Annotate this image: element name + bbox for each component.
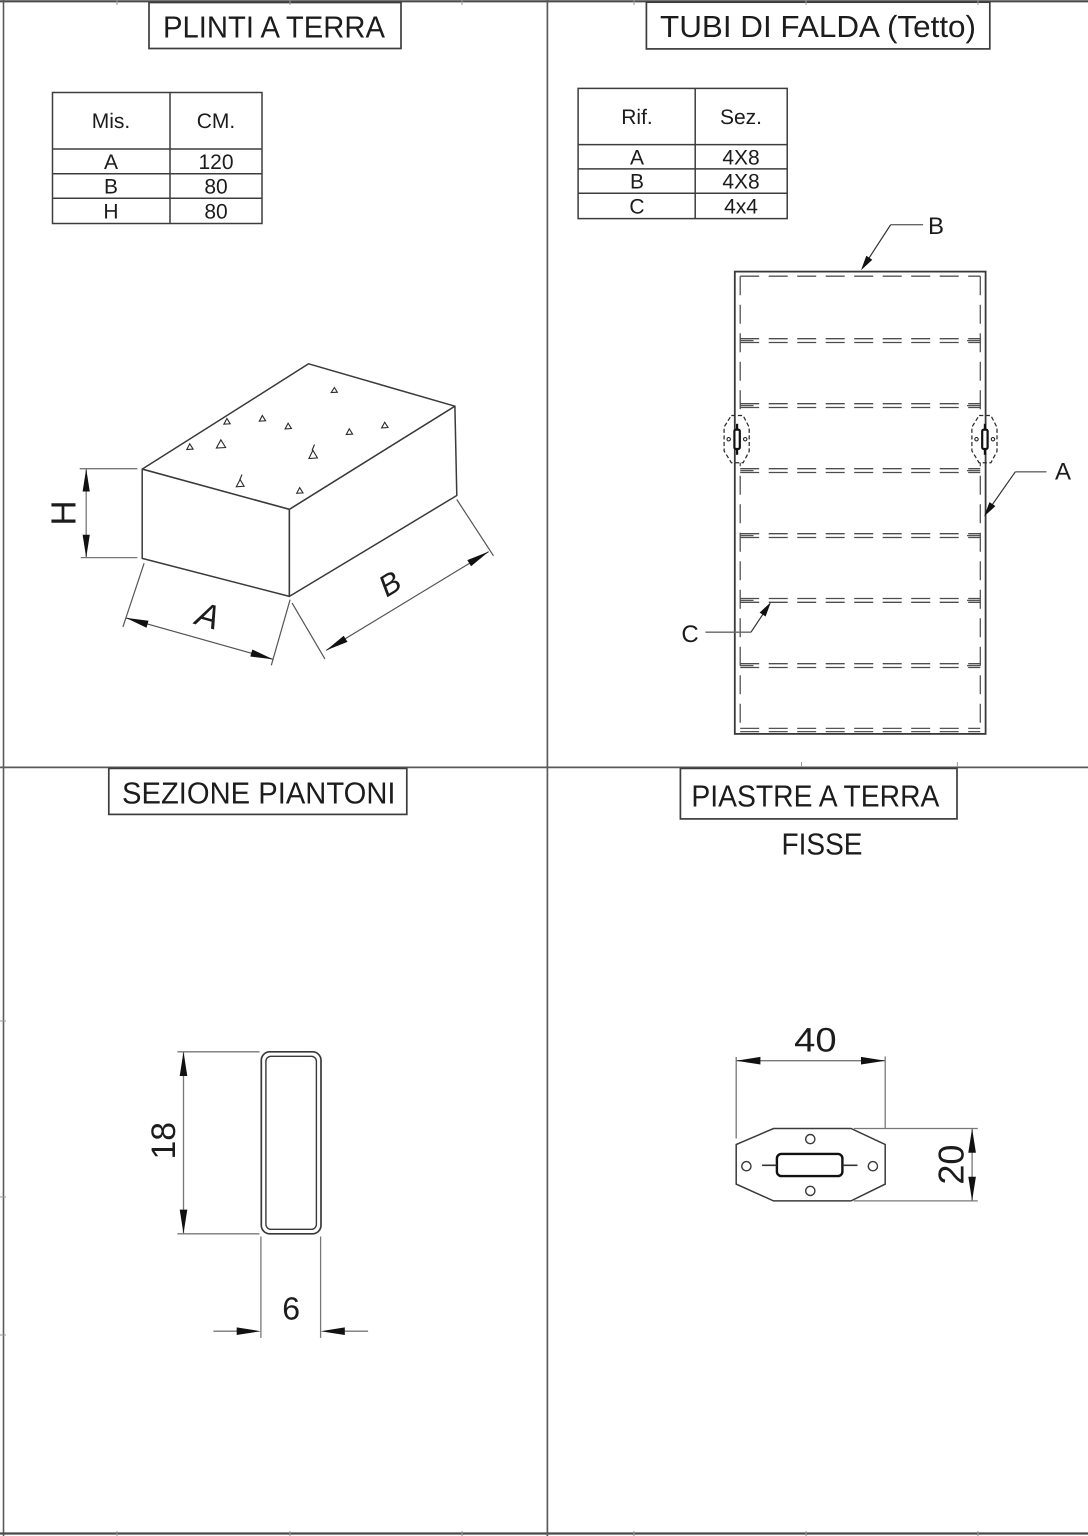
svg-text:FISSE: FISSE (782, 827, 863, 861)
svg-text:B: B (928, 213, 944, 240)
svg-text:120: 120 (198, 151, 233, 174)
svg-text:A: A (1055, 459, 1071, 486)
svg-text:80: 80 (204, 200, 227, 223)
svg-text:Rif.: Rif. (621, 106, 653, 129)
svg-text:40: 40 (794, 1021, 837, 1059)
svg-text:CM.: CM. (197, 110, 236, 133)
svg-text:18: 18 (145, 1122, 183, 1160)
svg-text:B: B (104, 176, 118, 199)
svg-text:H: H (44, 500, 83, 525)
svg-text:80: 80 (204, 176, 227, 199)
svg-text:PIASTRE A TERRA: PIASTRE A TERRA (691, 779, 940, 813)
svg-text:C: C (681, 621, 698, 648)
svg-text:4X8: 4X8 (722, 146, 759, 169)
svg-text:B: B (630, 171, 644, 194)
svg-text:4x4: 4x4 (724, 195, 758, 218)
svg-text:PLINTI A TERRA: PLINTI A TERRA (163, 10, 386, 44)
svg-text:A: A (104, 151, 118, 174)
svg-text:20: 20 (930, 1145, 971, 1185)
svg-text:6: 6 (282, 1291, 300, 1327)
svg-text:SEZIONE PIANTONI: SEZIONE PIANTONI (122, 777, 396, 811)
svg-text:A: A (630, 146, 644, 169)
svg-text:H: H (103, 200, 118, 223)
svg-text:Sez.: Sez. (720, 106, 762, 129)
svg-text:Mis.: Mis. (92, 110, 131, 133)
svg-text:TUBI DI FALDA (Tetto): TUBI DI FALDA (Tetto) (660, 10, 976, 44)
svg-text:4X8: 4X8 (722, 171, 759, 194)
svg-text:C: C (629, 195, 644, 218)
